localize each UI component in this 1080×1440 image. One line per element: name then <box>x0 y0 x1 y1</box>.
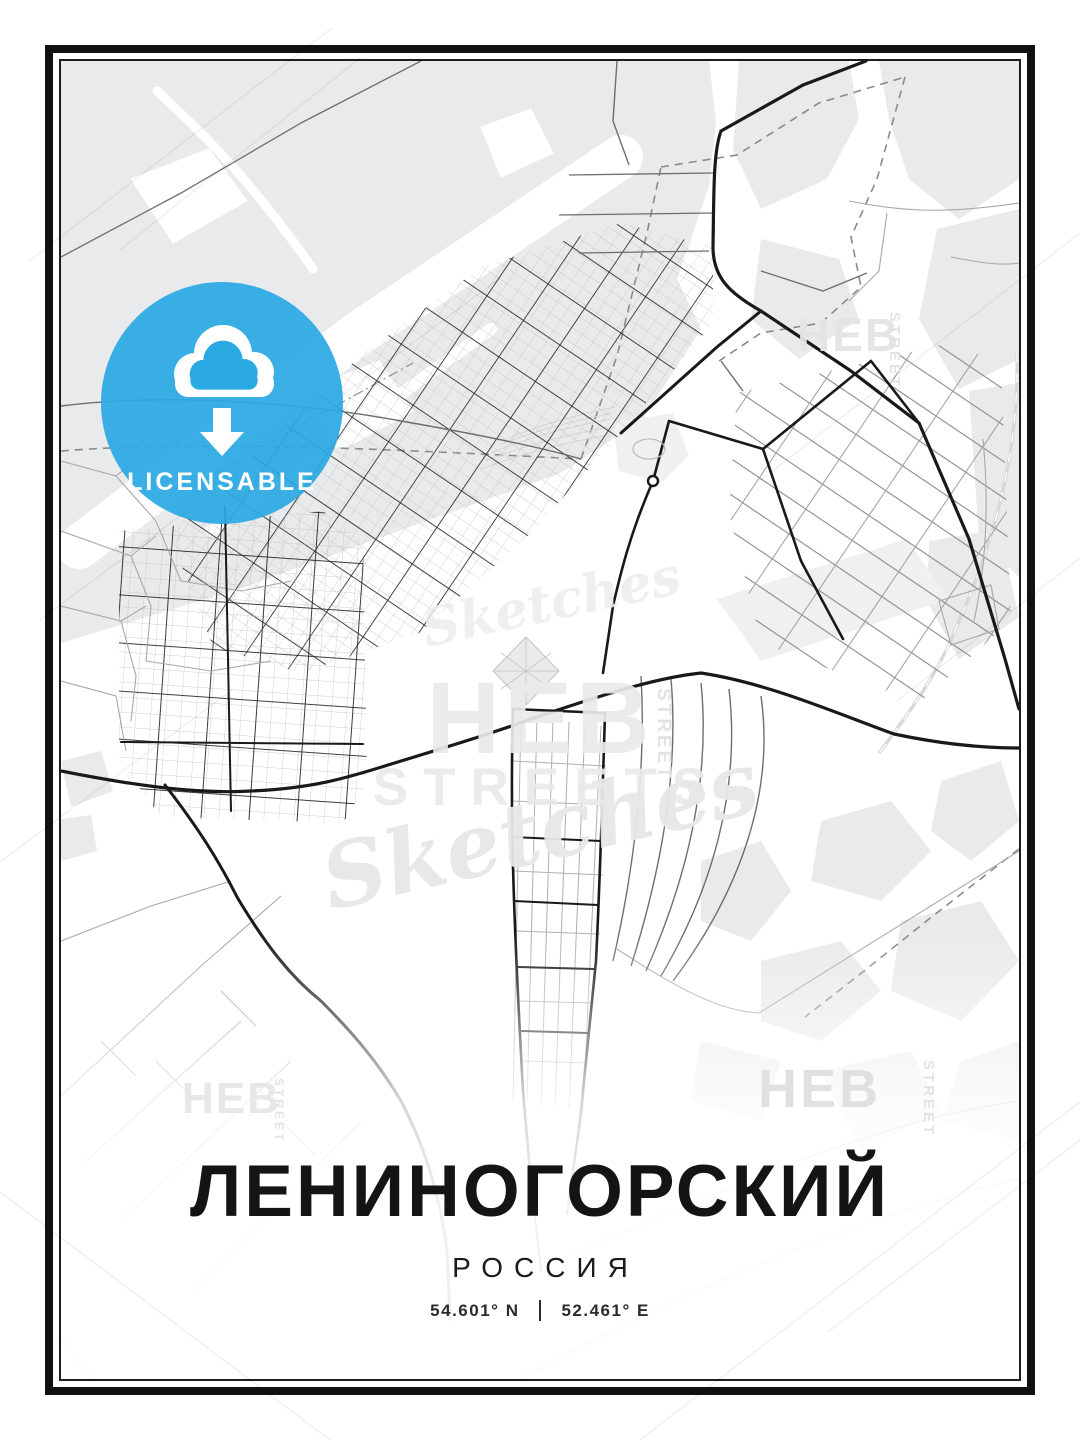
latitude-value: 54.601° N <box>430 1301 519 1321</box>
roundabout-node <box>648 476 658 486</box>
longitude-value: 52.461° E <box>561 1301 649 1321</box>
cloud-shape <box>174 325 274 397</box>
country-subtitle: РОССИЯ <box>0 1252 1080 1284</box>
licensable-badge: LICENSABLE <box>101 282 343 524</box>
coordinates: 54.601° N 52.461° E <box>0 1300 1080 1321</box>
poster-canvas: { "poster": { "title": "ЛЕНИНОГОРСКИЙ", … <box>0 0 1080 1440</box>
park-square <box>493 637 559 705</box>
cloud-download-icon <box>157 312 287 408</box>
badge-label: LICENSABLE <box>127 468 317 497</box>
download-arrow-icon <box>199 408 245 458</box>
coordinate-separator <box>539 1300 541 1321</box>
city-title: ЛЕНИНОГОРСКИЙ <box>0 1150 1080 1233</box>
